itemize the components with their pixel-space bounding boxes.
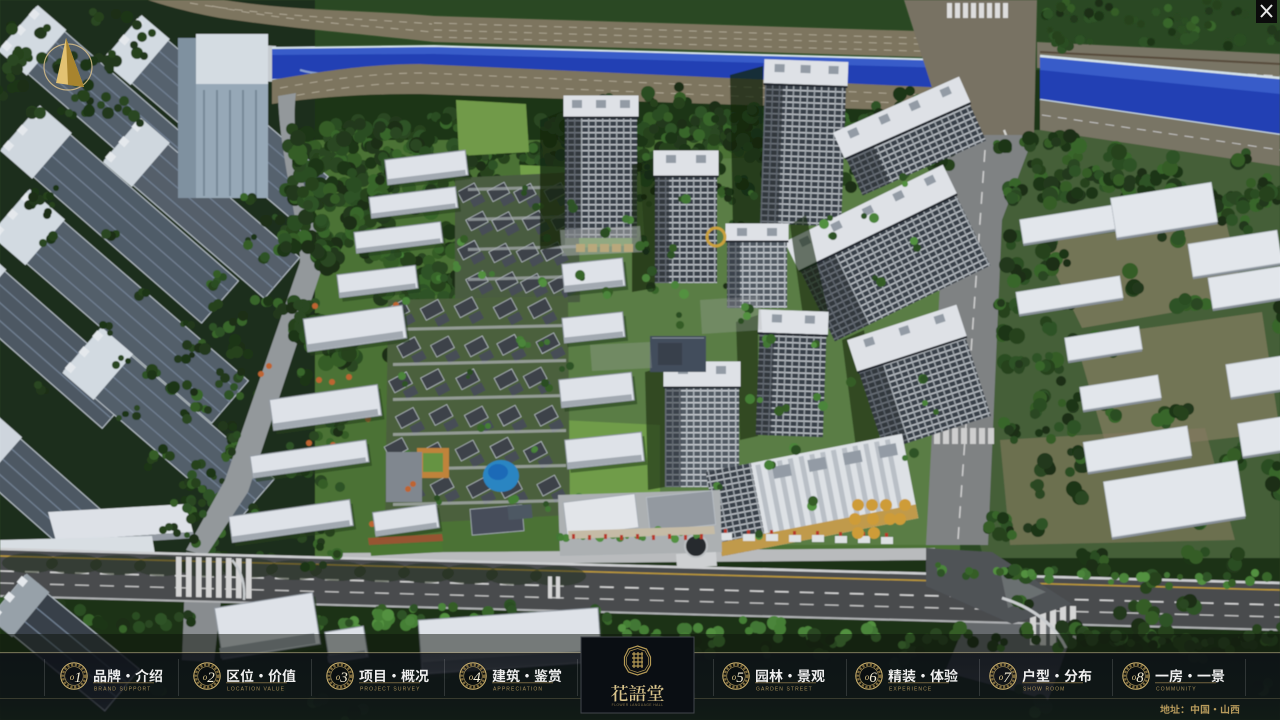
- svg-text:1: 1: [74, 670, 82, 686]
- svg-text:FLOWER LANGUAGE HALL: FLOWER LANGUAGE HALL: [612, 703, 664, 707]
- svg-text:GARDEN STREET: GARDEN STREET: [756, 687, 813, 693]
- svg-text:2: 2: [207, 670, 215, 686]
- svg-text:6: 6: [869, 670, 877, 686]
- svg-text:COMMUNITY: COMMUNITY: [1156, 687, 1197, 693]
- svg-text:BRAND SUPPORT: BRAND SUPPORT: [94, 687, 151, 693]
- svg-text:8: 8: [1136, 670, 1144, 686]
- svg-text:EXPERIENCE: EXPERIENCE: [889, 687, 932, 693]
- svg-text:LOCATION VALUE: LOCATION VALUE: [227, 687, 285, 693]
- svg-text:PROJECT SURVEY: PROJECT SURVEY: [360, 687, 421, 693]
- svg-text:SHOW ROOM: SHOW ROOM: [1023, 687, 1065, 693]
- svg-text:5: 5: [736, 670, 744, 686]
- svg-text:3: 3: [339, 670, 348, 686]
- svg-text:4: 4: [473, 670, 481, 686]
- svg-text:APPRECIATION: APPRECIATION: [493, 687, 543, 693]
